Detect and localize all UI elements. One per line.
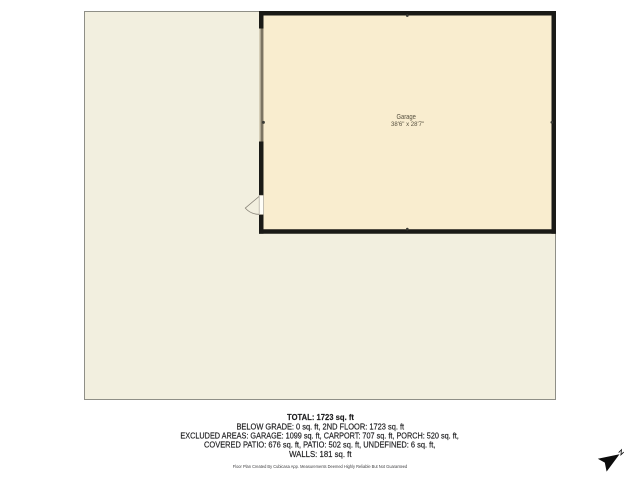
svg-text:Floor Plan Created By Cubicasa: Floor Plan Created By Cubicasa App. Meas… (233, 464, 408, 469)
svg-text:TOTAL: 1723 sq. ft: TOTAL: 1723 sq. ft (287, 412, 354, 422)
svg-text:38'6" x 28'7": 38'6" x 28'7" (391, 121, 425, 128)
svg-text:WALLS: 181 sq. ft: WALLS: 181 sq. ft (289, 449, 352, 459)
svg-text:Garage: Garage (396, 112, 416, 121)
